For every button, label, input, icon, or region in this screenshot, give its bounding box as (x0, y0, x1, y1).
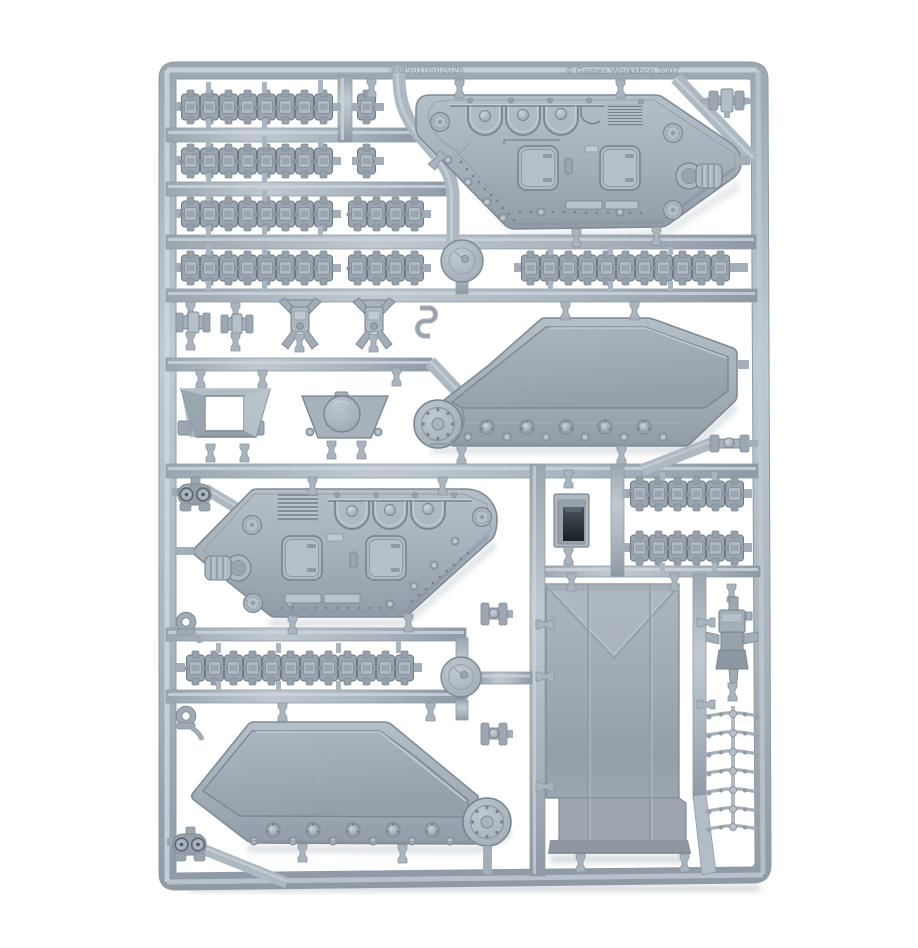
svg-text:© Games Workshop 2007: © Games Workshop 2007 (566, 66, 679, 77)
svg-text:9939010502026: 9939010502026 (389, 65, 464, 75)
